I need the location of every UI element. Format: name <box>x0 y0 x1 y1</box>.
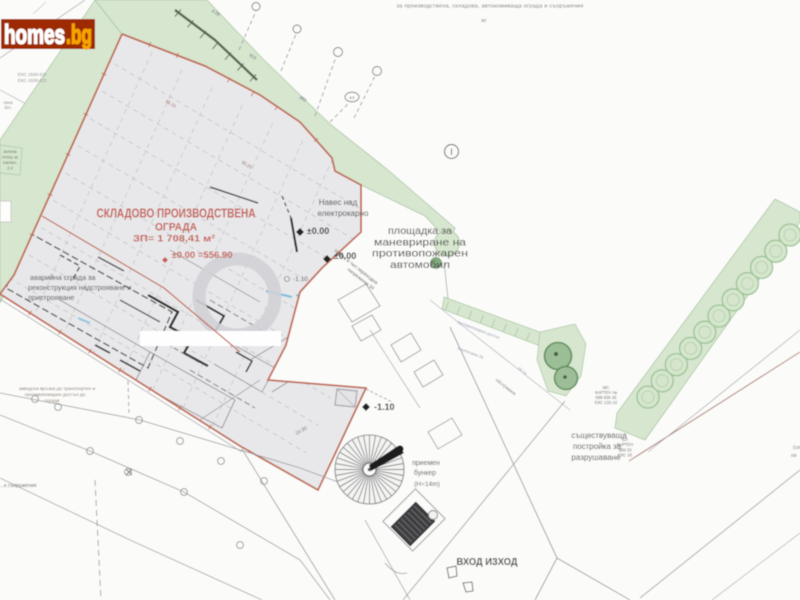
svg-text:I: I <box>450 147 453 158</box>
svg-text:маневриране на: маневриране на <box>374 237 467 248</box>
svg-text:(сит: (сит <box>793 445 800 451</box>
svg-text:±0.00 =556.90: ±0.00 =556.90 <box>172 249 233 260</box>
svg-text:аварийна сграда за: аварийна сграда за <box>30 273 95 282</box>
svg-text:противопожарен: противопожарен <box>372 249 468 260</box>
svg-text:пристрояване: пристрояване <box>28 293 74 302</box>
svg-text:(Н=14m): (Н=14m) <box>414 481 440 488</box>
svg-text:ЗП= 1 708,41 м²: ЗП= 1 708,41 м² <box>133 233 215 244</box>
svg-text:площадка за: площадка за <box>388 226 452 237</box>
svg-text:приемен: приемен <box>412 460 440 467</box>
svg-text:ЕКС 1530-ЕО: ЕКС 1530-ЕО <box>18 78 47 83</box>
svg-text:2.4: 2.4 <box>7 166 13 171</box>
svg-text:homes: homes <box>4 20 65 50</box>
svg-text:озелен.: озелен. <box>3 160 18 165</box>
svg-text:ЕКС 10: ЕКС 10 <box>618 453 633 458</box>
svg-text:заводска връзка до транспортен: заводска връзка до транспортен и <box>19 387 96 392</box>
svg-text:±0.00: ±0.00 <box>307 226 329 236</box>
svg-text:реконструкция надстрояване и: реконструкция надстрояване и <box>28 283 131 292</box>
svg-text:-1.10: -1.10 <box>374 402 395 412</box>
svg-text:СКЛАДОВО ПРОИЗВОДСТВЕНА: СКЛАДОВО ПРОИЗВОДСТВЕНА <box>97 207 256 221</box>
svg-text:зелена: зелена <box>3 149 17 154</box>
svg-text:постройка за: постройка за <box>573 442 622 451</box>
svg-text:жг: жг <box>481 18 487 24</box>
svg-text:разрушаване: разрушаване <box>571 453 621 462</box>
svg-text:за производствена, складова, а: за производствена, складова, автоизмиващ… <box>396 4 583 10</box>
svg-text:ЕКС 1530-ЕО: ЕКС 1530-ЕО <box>18 72 47 77</box>
svg-text:сгради: сгради <box>45 399 60 404</box>
svg-text:съществуваща: съществуваща <box>571 431 627 440</box>
svg-text:.bg: .bg <box>66 20 92 50</box>
svg-text:ВХОД ИЗХОД: ВХОД ИЗХОД <box>457 557 519 568</box>
svg-text:Навес над: Навес над <box>319 198 358 207</box>
svg-text:бет.: бет. <box>4 105 11 110</box>
svg-text:бункер: бункер <box>414 469 436 477</box>
svg-text:противопожарен достъп до: противопожарен достъп до <box>25 393 86 398</box>
svg-text:-1.10: -1.10 <box>293 276 308 283</box>
svg-text:ня: ня <box>791 453 797 459</box>
svg-text:...к съоръжения: ...к съоръжения <box>0 483 37 489</box>
svg-text:електрокарно: електрокарно <box>318 209 369 218</box>
svg-text:ЕКС 132-10: ЕКС 132-10 <box>595 400 618 405</box>
svg-text:площ за: площ за <box>2 155 19 160</box>
svg-text:автомобил: автомобил <box>390 259 450 271</box>
svg-text:КЛ: КЛ <box>350 95 355 100</box>
